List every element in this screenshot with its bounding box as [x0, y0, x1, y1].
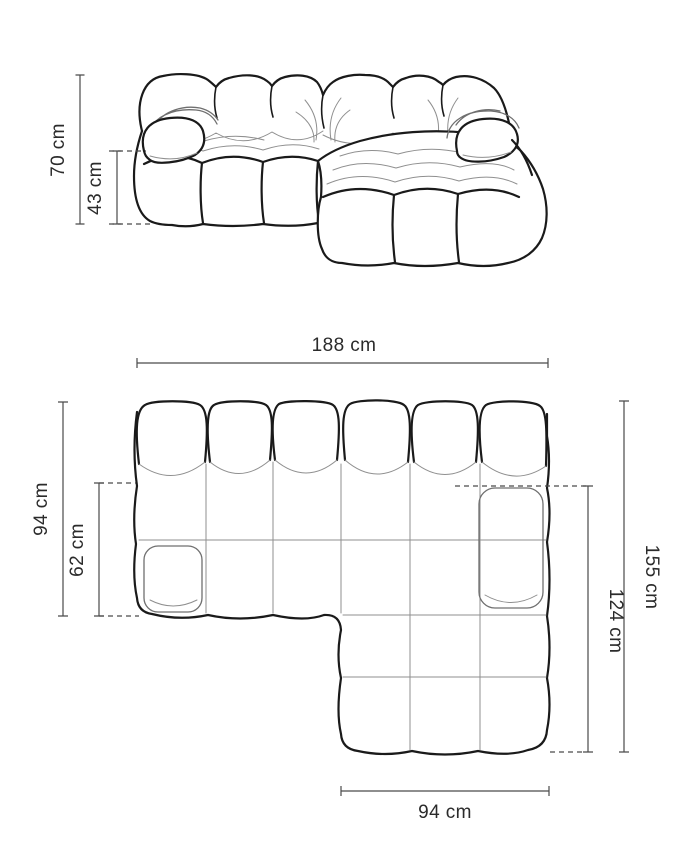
top-outline [134, 412, 549, 755]
front-sofa-drawing [134, 74, 547, 266]
front-seat-height-label: 43 cm [85, 161, 106, 215]
top-view: 188 cm 94 cm 62 cm 155 cm 124 cm 94 cm [31, 335, 662, 823]
top-left-armrest-pad-inner [150, 600, 197, 606]
top-dim-chaise-depth-line [583, 486, 593, 752]
top-back-cushion [412, 401, 478, 462]
top-dim-seat-depth: 62 cm [67, 483, 104, 616]
top-back-cushions [137, 400, 547, 476]
top-back-cushion-crease [275, 460, 337, 473]
top-dim-depth-line [58, 402, 68, 616]
top-dim-total-depth-line [619, 401, 629, 752]
front-height-label: 70 cm [48, 123, 69, 177]
top-right-armrest-pad [479, 488, 543, 608]
front-dim-seat-height-line [113, 151, 122, 224]
top-total-depth-label: 155 cm [641, 545, 662, 610]
top-back-cushion [273, 401, 339, 460]
top-dim-seat-depth-line [94, 483, 104, 616]
top-dim-width: 188 cm [137, 335, 548, 368]
top-back-cushion-crease [139, 462, 205, 476]
top-seat-depth-label: 62 cm [67, 523, 88, 577]
top-back-cushion-crease [345, 460, 408, 474]
top-back-cushion [480, 401, 547, 466]
front-dim-height-line [76, 75, 85, 224]
top-back-cushion [137, 401, 207, 464]
top-depth-label: 94 cm [31, 482, 52, 536]
top-dim-width-line [137, 358, 548, 368]
top-right-armrest-pad-inner [485, 595, 537, 603]
top-dim-chaise-width: 94 cm [341, 786, 549, 823]
top-back-cushion [208, 401, 272, 462]
top-width-label: 188 cm [312, 335, 377, 356]
top-dim-chaise-depth: 124 cm [583, 486, 626, 752]
top-back-cushion-crease [210, 460, 270, 474]
top-back-cushion-crease [414, 462, 476, 475]
front-back-cushion-separators [215, 85, 444, 128]
top-dim-depth: 94 cm [31, 402, 68, 616]
top-chaise-depth-label: 124 cm [605, 589, 626, 654]
front-left-armrest [143, 118, 205, 163]
top-dim-total-depth: 155 cm [619, 401, 662, 752]
sofa-dimension-page: 70 cm 43 cm [0, 0, 691, 848]
top-sofa-drawing [134, 400, 549, 754]
front-view: 70 cm 43 cm [48, 74, 547, 266]
top-dim-chaise-width-line [341, 786, 549, 796]
top-back-cushion [343, 400, 410, 462]
front-dim-height: 70 cm [48, 75, 85, 224]
top-chaise-width-label: 94 cm [418, 802, 472, 823]
sofa-dimension-diagram: 70 cm 43 cm [0, 0, 691, 848]
